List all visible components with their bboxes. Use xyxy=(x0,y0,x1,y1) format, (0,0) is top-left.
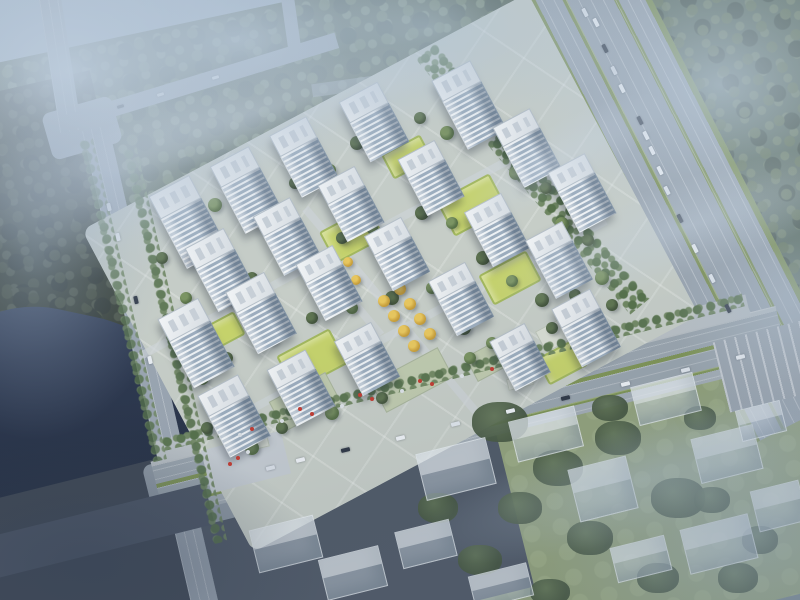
golden-tree xyxy=(378,295,390,307)
tree-cluster xyxy=(498,492,542,524)
pedestrian-dot xyxy=(460,374,464,378)
tree xyxy=(464,352,476,364)
golden-tree xyxy=(404,298,416,310)
pedestrian-dot xyxy=(238,433,242,437)
golden-tree xyxy=(388,310,400,322)
pedestrian-dot xyxy=(280,419,284,423)
tree xyxy=(506,275,518,287)
pedestrian-dot xyxy=(340,404,344,408)
tree-cluster xyxy=(592,395,628,421)
tree xyxy=(446,217,458,229)
pedestrian-dot xyxy=(490,367,494,371)
pedestrian-dot xyxy=(250,427,254,431)
tree xyxy=(546,322,558,334)
tree xyxy=(582,234,594,246)
tree-cluster xyxy=(567,521,613,555)
tree xyxy=(595,271,609,285)
pedestrian-dot xyxy=(370,397,374,401)
golden-tree xyxy=(424,328,436,340)
tree xyxy=(535,293,549,307)
tree xyxy=(414,112,426,124)
tree xyxy=(540,182,552,194)
pedestrian-dot xyxy=(310,412,314,416)
pedestrian-dot xyxy=(418,379,422,383)
pedestrian-dot xyxy=(430,382,434,386)
tree xyxy=(156,252,168,264)
tree-cluster xyxy=(694,487,730,513)
golden-tree xyxy=(398,325,410,337)
pedestrian-dot xyxy=(236,456,240,460)
golden-tree xyxy=(408,340,420,352)
aerial-site-plan-render xyxy=(0,0,800,600)
pedestrian-dot xyxy=(228,462,232,466)
tree-cluster xyxy=(530,579,570,600)
pedestrian-dot xyxy=(246,450,250,454)
tree xyxy=(306,312,318,324)
pedestrian-dot xyxy=(358,393,362,397)
tree xyxy=(440,126,454,140)
pedestrian-dot xyxy=(298,407,302,411)
tree-cluster xyxy=(718,563,758,593)
tree-cluster xyxy=(595,421,641,455)
pedestrian-dot xyxy=(400,389,404,393)
golden-tree xyxy=(414,313,426,325)
tree xyxy=(376,392,388,404)
tree xyxy=(606,299,618,311)
golden-tree xyxy=(343,257,353,267)
tree xyxy=(208,198,222,212)
tree xyxy=(276,422,288,434)
